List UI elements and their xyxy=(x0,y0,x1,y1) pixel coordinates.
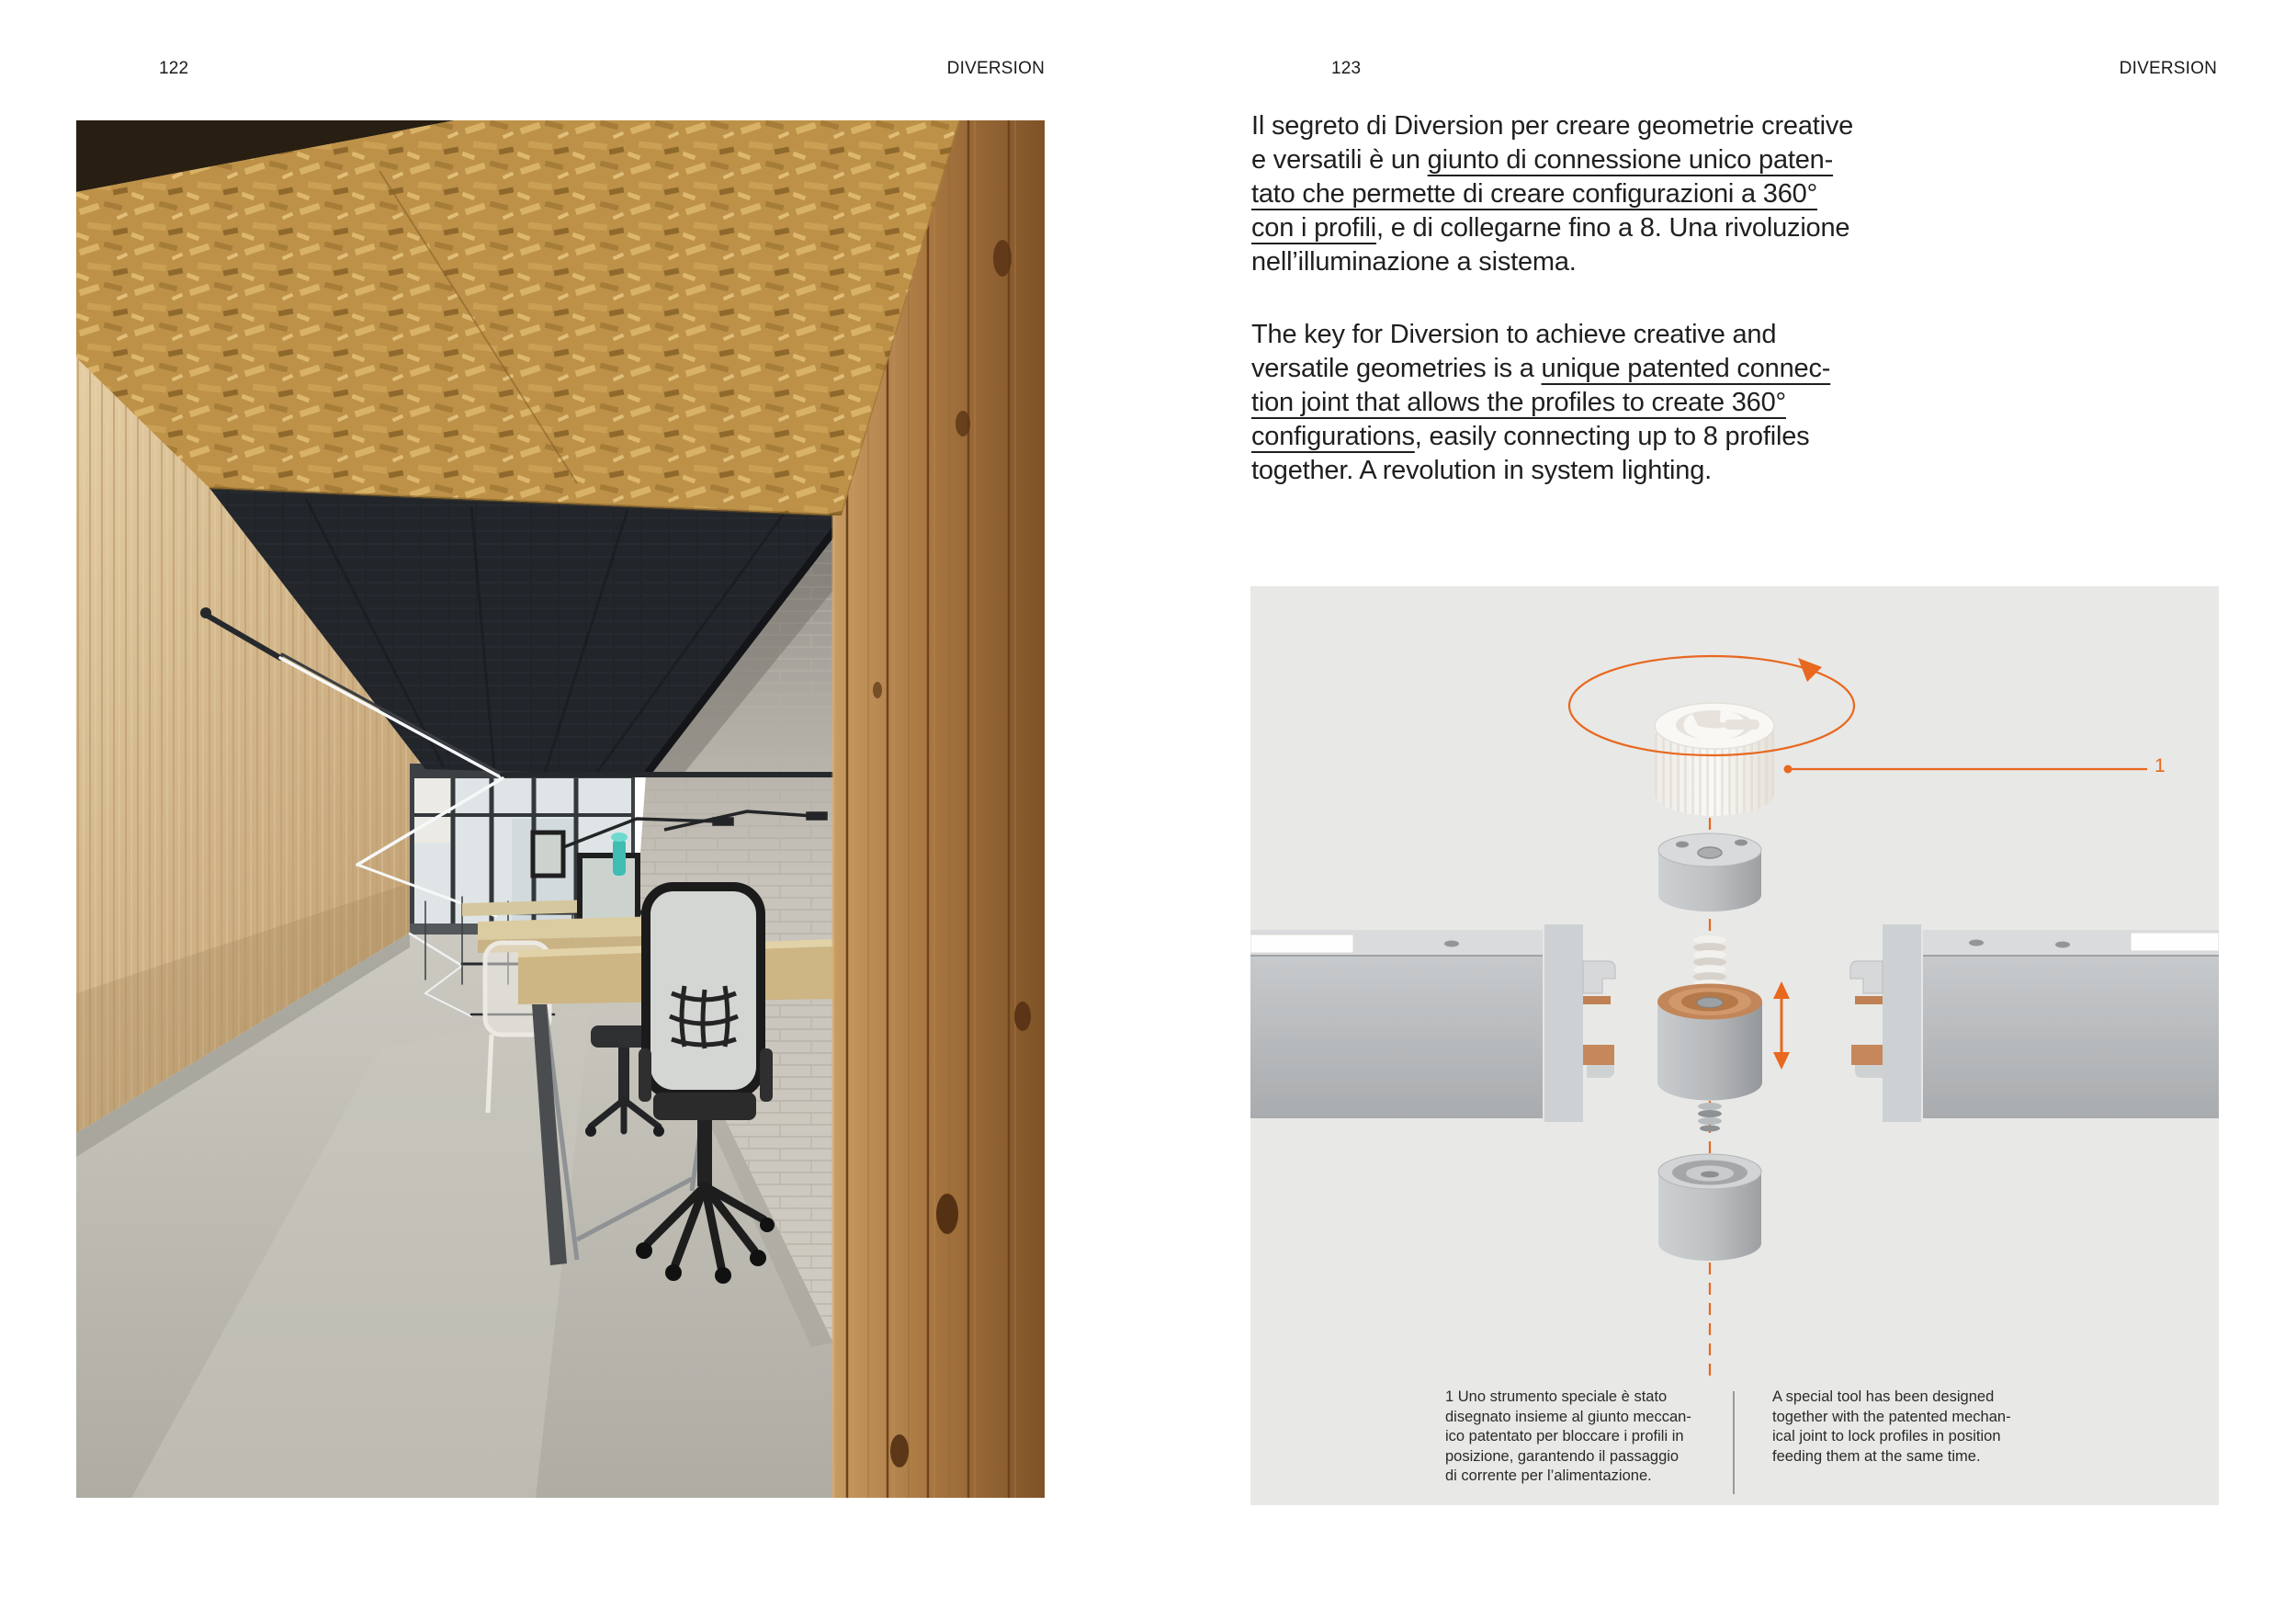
intro-paragraph-italian: Il segreto di Diversion per creare geome… xyxy=(1251,109,1950,279)
vertical-double-arrow xyxy=(1773,981,1790,1070)
osb-bulkhead xyxy=(76,120,960,515)
right-page-header: 123 DIVERSION xyxy=(1331,59,2217,79)
footnote-english: A special tool has been designed togethe… xyxy=(1772,1388,2048,1467)
callout-leader xyxy=(1784,765,2148,774)
right-header-title: DIVERSION xyxy=(2120,59,2217,79)
catalog-spread: 122 DIVERSION 123 DIVERSION xyxy=(0,0,2296,1620)
intro-paragraph-english: The key for Diversion to achieve creativ… xyxy=(1251,318,1950,488)
upper-disc xyxy=(1658,833,1761,912)
footnote-divider xyxy=(1733,1391,1735,1494)
page-number-left: 122 xyxy=(159,59,188,79)
footnote-italian: 1 Uno strumento speciale è stato disegna… xyxy=(1445,1388,1721,1487)
callout-1: 1 xyxy=(2155,755,2166,777)
bottom-ring xyxy=(1658,1154,1761,1261)
copper-contact-cylinder xyxy=(1657,984,1762,1101)
vase xyxy=(611,833,628,876)
rotation-arrowhead xyxy=(1798,658,1822,682)
screw-tip xyxy=(1698,1103,1722,1132)
left-page-header: 122 DIVERSION xyxy=(159,59,1045,79)
right-profile xyxy=(1850,924,2219,1122)
knurled-knob xyxy=(1655,703,1774,816)
left-profile xyxy=(1250,924,1615,1122)
diagram-panel: 1 1 Uno strumento speciale è stato diseg… xyxy=(1250,586,2219,1505)
led-stripe-left xyxy=(1250,935,1353,953)
led-stripe-right xyxy=(2131,933,2219,951)
page-number-right: 123 xyxy=(1331,59,1361,79)
joint-exploded-diagram xyxy=(1250,586,2219,1505)
left-header-title: DIVERSION xyxy=(947,59,1045,79)
office-interior-photo xyxy=(76,120,1045,1498)
